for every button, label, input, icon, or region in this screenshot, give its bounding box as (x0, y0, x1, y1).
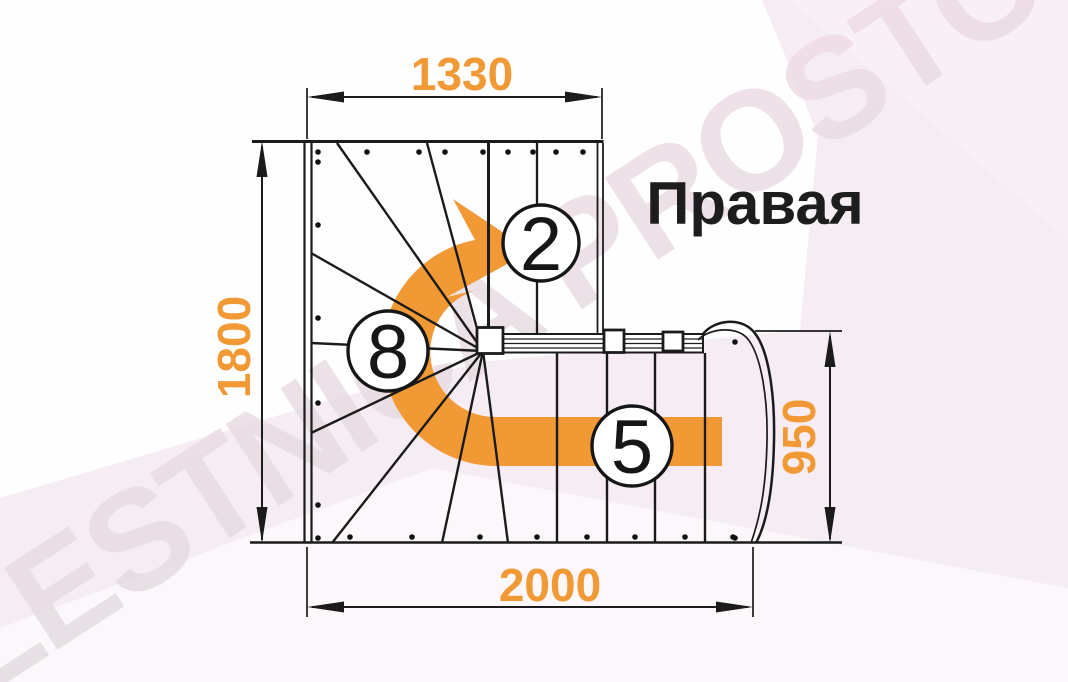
dim-label-right-height: 950 (773, 399, 825, 476)
railing-post (604, 330, 624, 353)
stair-plan-diagram: LESTNICA PROSTO.RU (0, 0, 1068, 682)
newel-post (477, 328, 503, 354)
dim-label-left-height: 1800 (208, 296, 260, 398)
step-number: 8 (367, 310, 409, 395)
railing-post (663, 332, 683, 351)
dim-label-top-width: 1330 (411, 48, 513, 100)
dim-label-bottom-width: 2000 (499, 559, 601, 611)
step-number: 2 (520, 202, 562, 287)
step-number: 5 (611, 405, 653, 490)
stair-plan-page: LESTNICA PROSTO.RU (0, 0, 1068, 682)
page-title: Правая (646, 170, 864, 237)
